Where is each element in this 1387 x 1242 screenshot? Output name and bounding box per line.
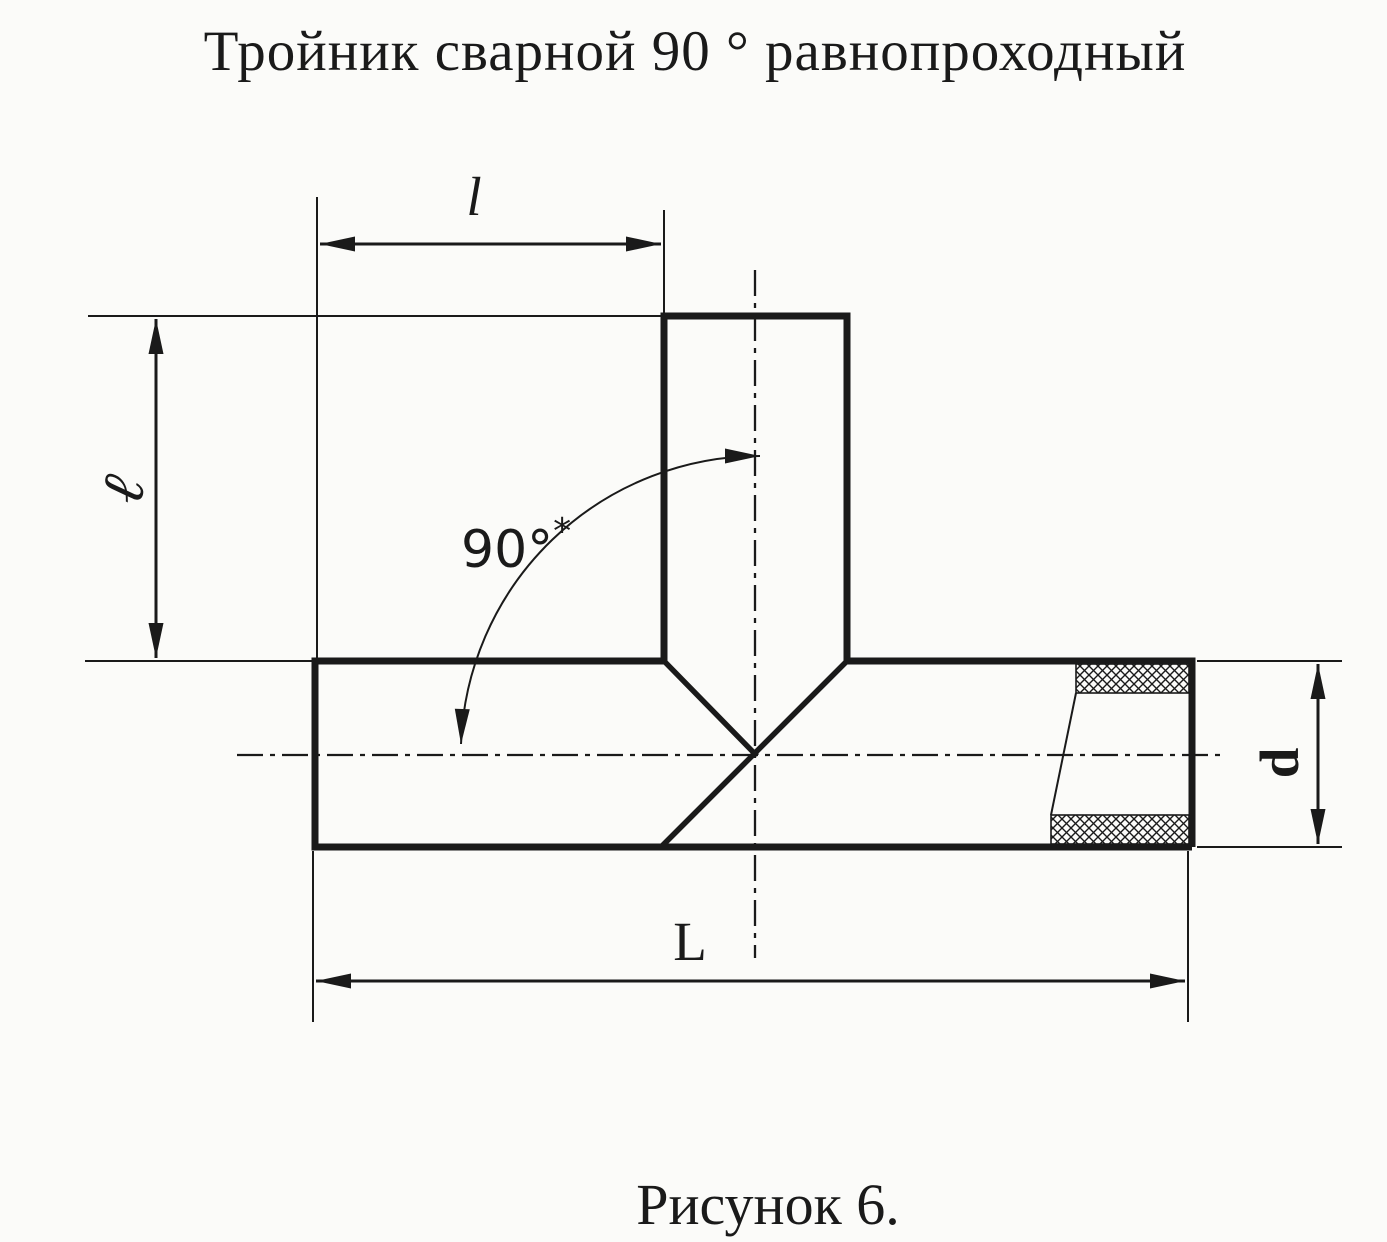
- angle-footnote-asterisk: *: [553, 511, 571, 552]
- weld-seam-short-diagonal: [664, 661, 757, 756]
- label-branch-extension-length: l: [466, 166, 481, 227]
- pipe-wall-hatch-top: [1076, 664, 1189, 693]
- technical-drawing-tee-fitting: Тройник сварной 90 ° равнопроходный Рису…: [0, 0, 1387, 1242]
- figure-caption: Рисунок 6.: [636, 1172, 900, 1237]
- angle-value: 90°: [461, 520, 553, 580]
- angle-arc-90deg: [461, 456, 760, 744]
- label-outer-diameter: d: [1249, 748, 1310, 779]
- angle-label: 90°*: [461, 511, 571, 580]
- label-branch-height: ℓ: [86, 468, 160, 510]
- pipe-wall-hatch-bottom: [1051, 815, 1189, 844]
- page-title: Тройник сварной 90 ° равнопроходный: [204, 20, 1187, 83]
- scanned-figure-page: Тройник сварной 90 ° равнопроходный Рису…: [0, 0, 1387, 1242]
- label-overall-length: L: [673, 911, 707, 972]
